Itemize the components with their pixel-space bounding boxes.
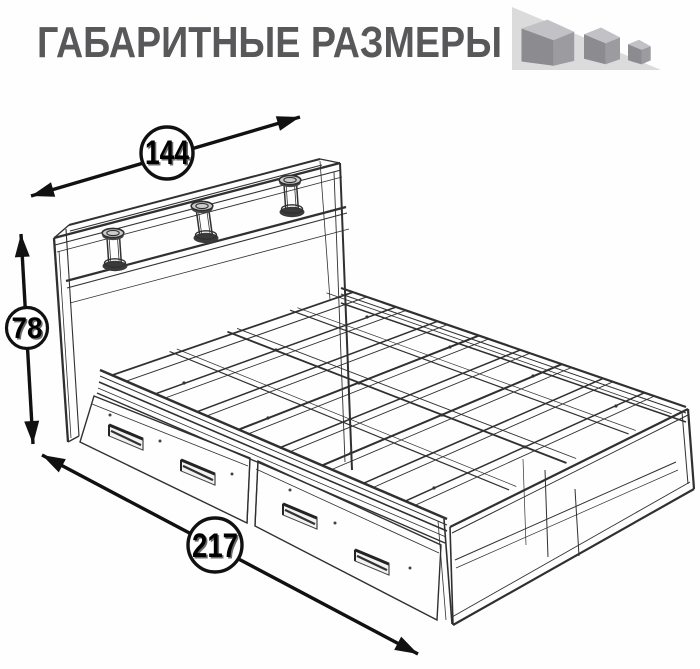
svg-text:217: 217 — [192, 527, 238, 565]
svg-text:ГАБАРИТНЫЕ РАЗМЕРЫ: ГАБАРИТНЫЕ РАЗМЕРЫ — [37, 18, 502, 67]
svg-text:78: 78 — [12, 312, 43, 345]
svg-text:144: 144 — [145, 134, 189, 172]
